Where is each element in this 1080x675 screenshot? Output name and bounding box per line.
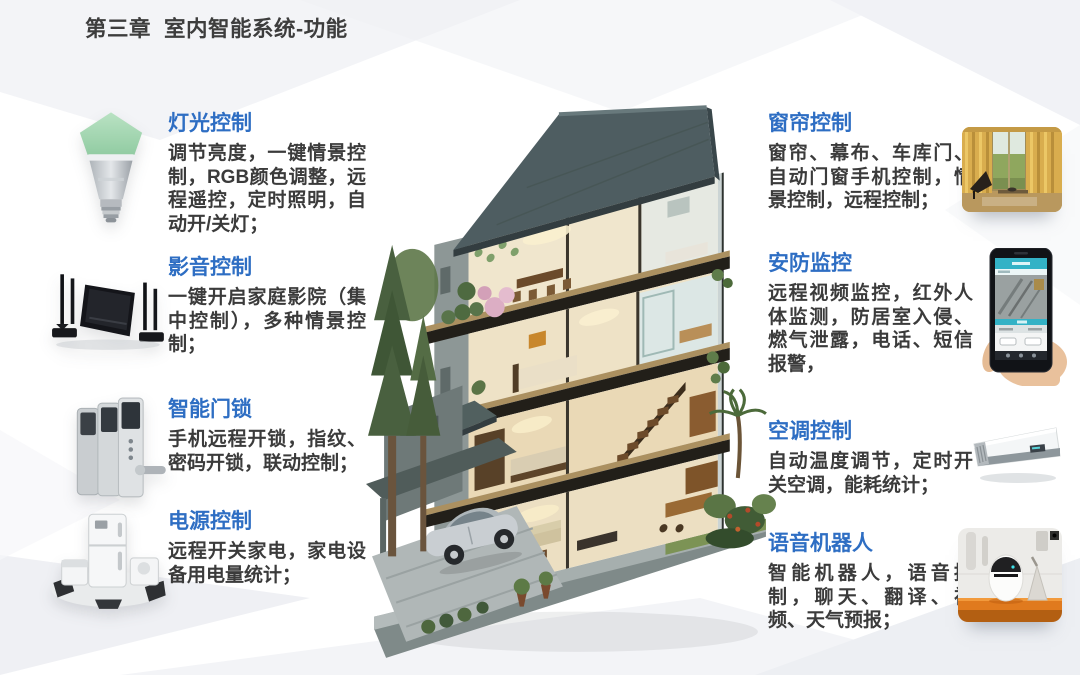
page-title: 第三章 室内智能系统-功能 <box>85 12 348 43</box>
feature-desc: 智能机器人，语音控制，聊天、翻译、视频、天气预报； <box>768 562 973 633</box>
feature-title: 安防监控 <box>768 252 973 276</box>
feature-door-lock: 智能门锁 手机远程开锁，指纹、密码开锁，联动控制； <box>168 398 366 475</box>
feature-title: 窗帘控制 <box>768 112 973 136</box>
feature-desc: 窗帘、幕布、车库门、自动门窗手机控制，情景控制，远程控制； <box>768 142 973 213</box>
feature-desc: 手机远程开锁，指纹、密码开锁，联动控制； <box>168 428 366 475</box>
feature-title: 语音机器人 <box>768 532 973 556</box>
security-phone-photo <box>974 248 1068 386</box>
feature-title: 智能门锁 <box>168 398 366 422</box>
feature-desc: 远程视频监控，红外人体监测，防居室入侵、燃气泄露，电话、短信报警， <box>768 282 973 376</box>
feature-light-control: 灯光控制 调节亮度，一键情景控制，RGB颜色调整，远程遥控，定时照明，自动开/关… <box>168 112 366 236</box>
feature-ac-control: 空调控制 自动温度调节，定时开关空调，能耗统计； <box>768 420 973 497</box>
air-conditioner-photo <box>966 414 1066 498</box>
feature-desc: 自动温度调节，定时开关空调，能耗统计； <box>768 450 973 497</box>
smart-home-cutaway-house <box>366 84 778 662</box>
feature-title: 电源控制 <box>168 510 366 534</box>
feature-desc: 一键开启家庭影院（集中控制），多种情景控制； <box>168 286 366 357</box>
feature-title: 空调控制 <box>768 420 973 444</box>
feature-desc: 调节亮度，一键情景控制，RGB颜色调整，远程遥控，定时照明，自动开/关灯； <box>168 142 366 236</box>
slide: 第三章 室内智能系统-功能 <box>0 0 1080 675</box>
feature-power-control: 电源控制 远程开关家电，家电设备用电量统计； <box>168 510 366 587</box>
door-lock-icon <box>70 396 170 504</box>
appliance-power-icon <box>48 508 170 612</box>
voice-robot-photo <box>958 528 1062 622</box>
feature-voice-robot: 语音机器人 智能机器人，语音控制，聊天、翻译、视频、天气预报； <box>768 532 973 633</box>
feature-security-monitoring: 安防监控 远程视频监控，红外人体监测，防居室入侵、燃气泄露，电话、短信报警， <box>768 252 973 376</box>
feature-title: 灯光控制 <box>168 112 366 136</box>
feature-desc: 远程开关家电，家电设备用电量统计； <box>168 540 366 587</box>
smart-bulb-icon <box>57 107 165 225</box>
curtain-photo <box>962 127 1062 212</box>
home-theater-icon <box>50 266 168 354</box>
feature-av-control: 影音控制 一键开启家庭影院（集中控制），多种情景控制； <box>168 256 366 357</box>
feature-curtain-control: 窗帘控制 窗帘、幕布、车库门、自动门窗手机控制，情景控制，远程控制； <box>768 112 973 213</box>
feature-title: 影音控制 <box>168 256 366 280</box>
